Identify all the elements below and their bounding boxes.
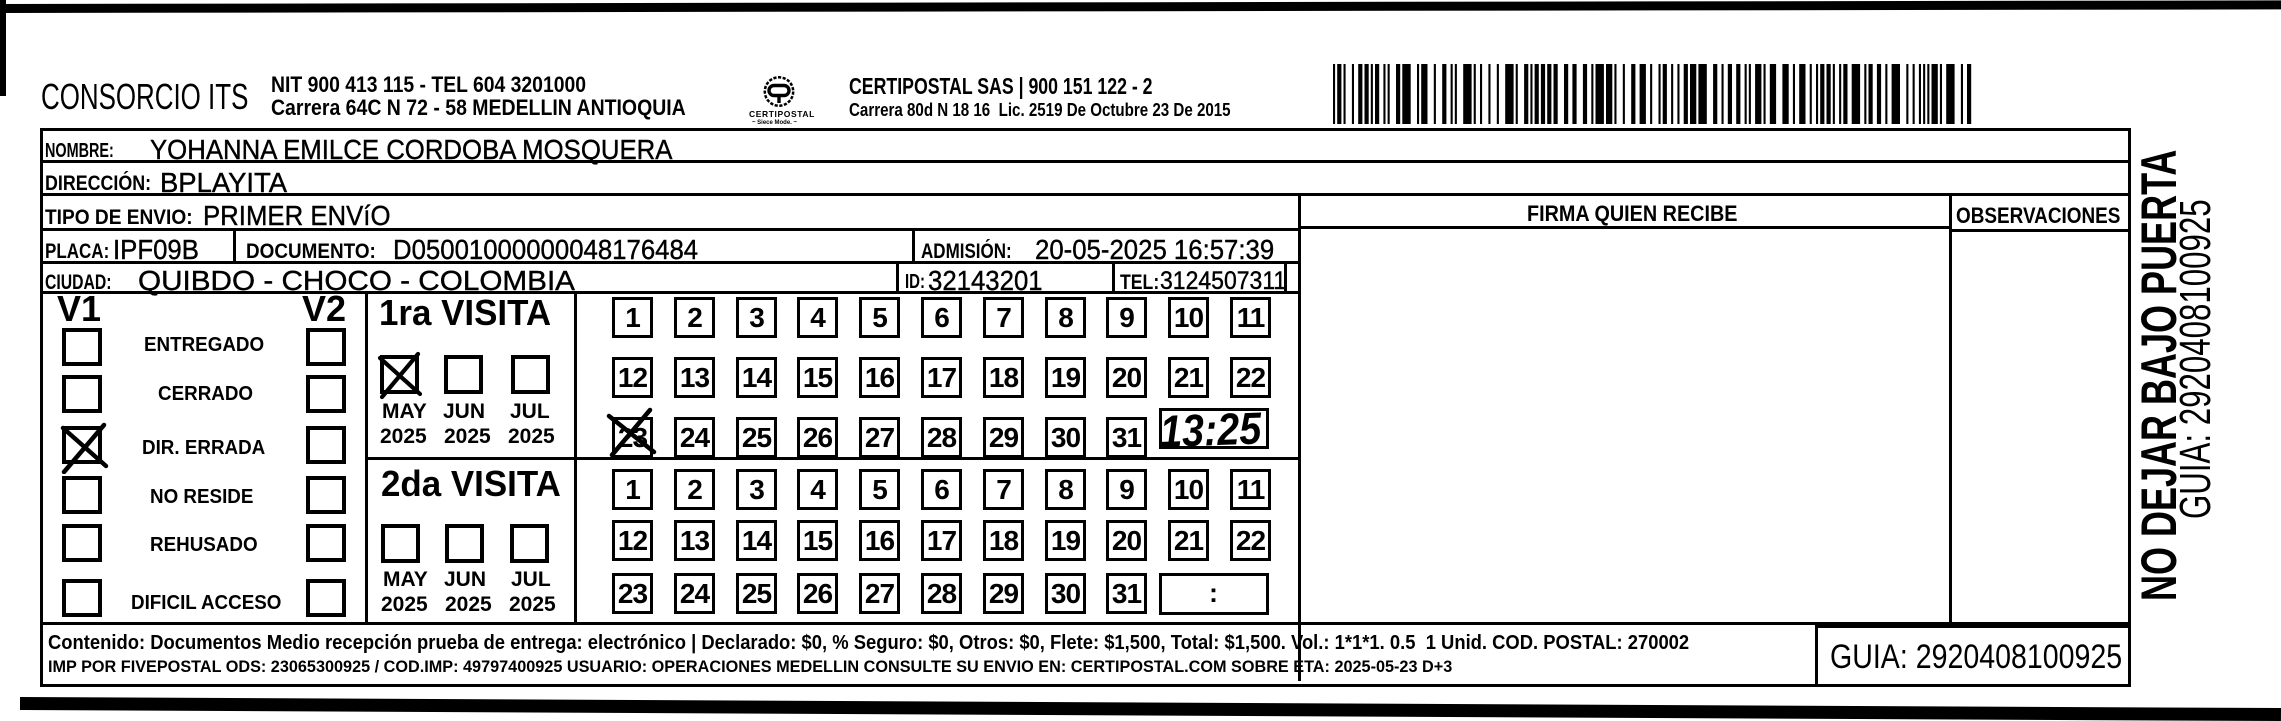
svg-text:~ Siece Mode. ~: ~ Siece Mode. ~ [752, 120, 798, 126]
svg-text:CERTIPOSTAL: CERTIPOSTAL [749, 109, 815, 119]
